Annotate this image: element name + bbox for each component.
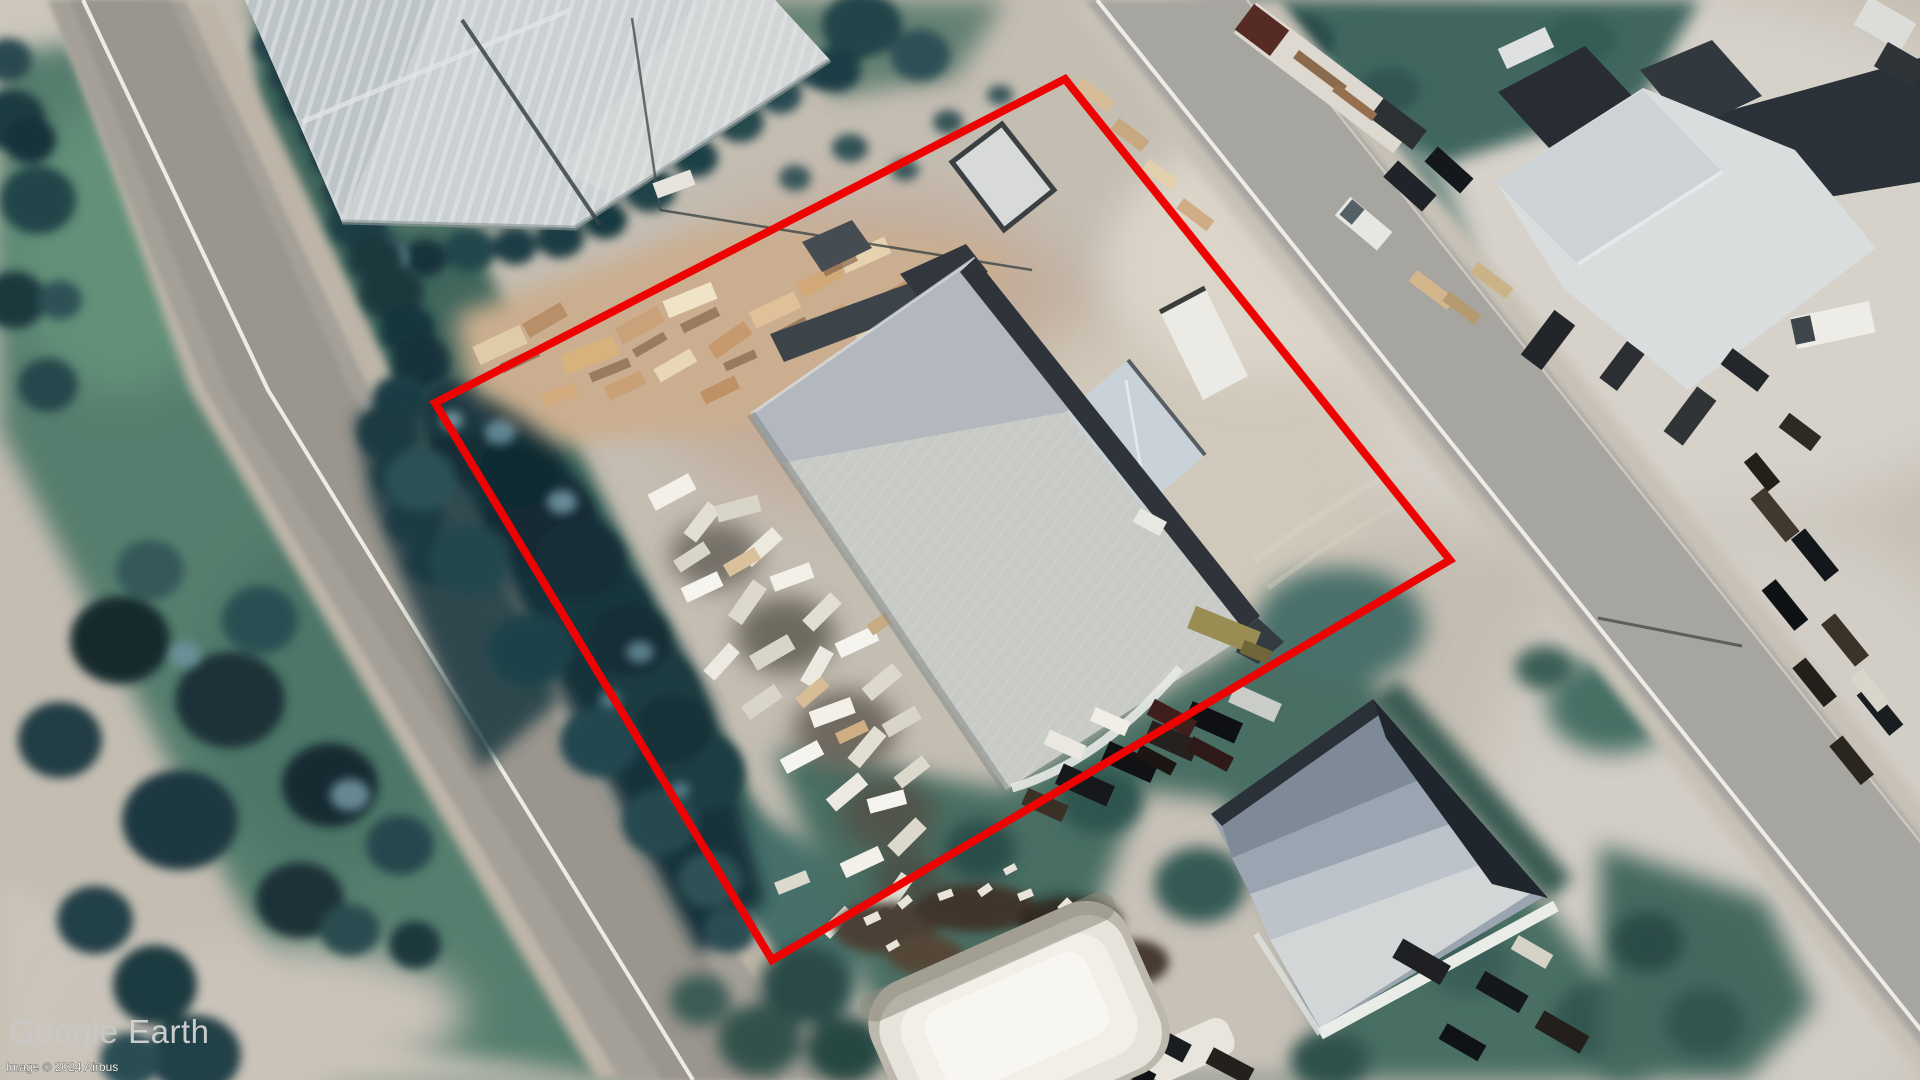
svg-text:Image © 2024 Airbus: Image © 2024 Airbus xyxy=(6,1060,118,1074)
svg-text:Google Earth: Google Earth xyxy=(9,1013,209,1050)
